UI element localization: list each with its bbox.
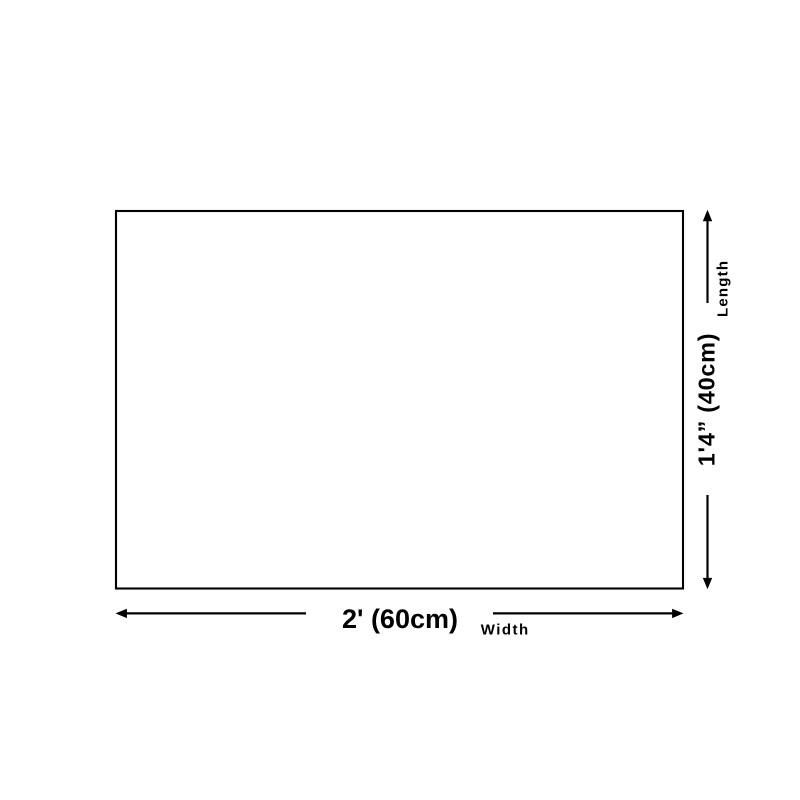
svg-text:2' (60cm): 2' (60cm) <box>342 604 458 634</box>
svg-text:Length: Length <box>715 260 732 317</box>
svg-text:1'4” (40cm): 1'4” (40cm) <box>694 333 720 466</box>
svg-text:Width: Width <box>481 622 530 639</box>
